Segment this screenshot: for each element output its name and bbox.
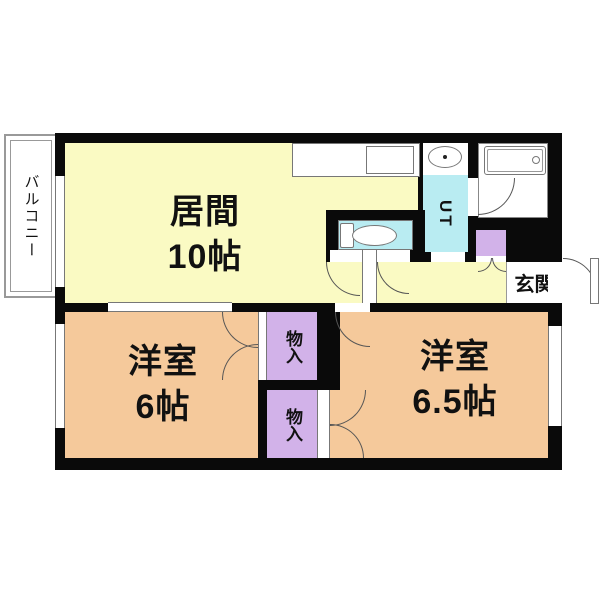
east-room-size: 6.5帖 bbox=[350, 380, 560, 425]
closet-upper-door-frame bbox=[258, 312, 267, 380]
bathroom-door-opening bbox=[468, 178, 478, 216]
shoe-cabinet bbox=[476, 230, 506, 256]
east-room-name: 洋室 bbox=[350, 335, 560, 380]
balcony-window bbox=[55, 176, 65, 287]
balcony: バルコニー bbox=[4, 134, 58, 298]
ut-room-label: UT bbox=[434, 183, 456, 245]
hallway-floor bbox=[418, 262, 506, 303]
living-room-size: 10帖 bbox=[110, 235, 300, 280]
hall-door-opening-right bbox=[377, 250, 410, 262]
bathtub-drain-icon bbox=[532, 156, 540, 164]
west-room-size: 6帖 bbox=[68, 385, 258, 430]
west-room-label: 洋室 6帖 bbox=[68, 340, 258, 430]
west-room-name: 洋室 bbox=[68, 340, 258, 385]
hall-door-opening-left bbox=[330, 250, 362, 262]
living-room-name: 居間 bbox=[110, 190, 300, 235]
balcony-label: バルコニー bbox=[21, 174, 42, 259]
washbasin-faucet-dot bbox=[443, 155, 447, 159]
hall-door-post bbox=[362, 250, 377, 303]
east-room-label: 洋室 6.5帖 bbox=[350, 335, 560, 425]
west-room-window bbox=[55, 324, 65, 428]
closet-lower-door-frame bbox=[317, 390, 330, 458]
closet-upper-label: 物入 bbox=[281, 318, 305, 376]
closet-lower-label: 物入 bbox=[281, 396, 305, 454]
entrance-door-leaf bbox=[590, 258, 599, 304]
floorplan-canvas: バルコニー 玄関 bbox=[0, 0, 600, 600]
kitchen-sink bbox=[366, 146, 414, 174]
balcony-inner-rail: バルコニー bbox=[10, 140, 52, 292]
living-west-room-window bbox=[108, 302, 232, 312]
east-room-door-opening bbox=[335, 303, 370, 312]
living-room-label: 居間 10帖 bbox=[110, 190, 300, 280]
entrance-door-opening bbox=[548, 262, 562, 303]
ut-door-opening bbox=[431, 252, 465, 262]
toilet-bowl-icon bbox=[352, 225, 397, 246]
